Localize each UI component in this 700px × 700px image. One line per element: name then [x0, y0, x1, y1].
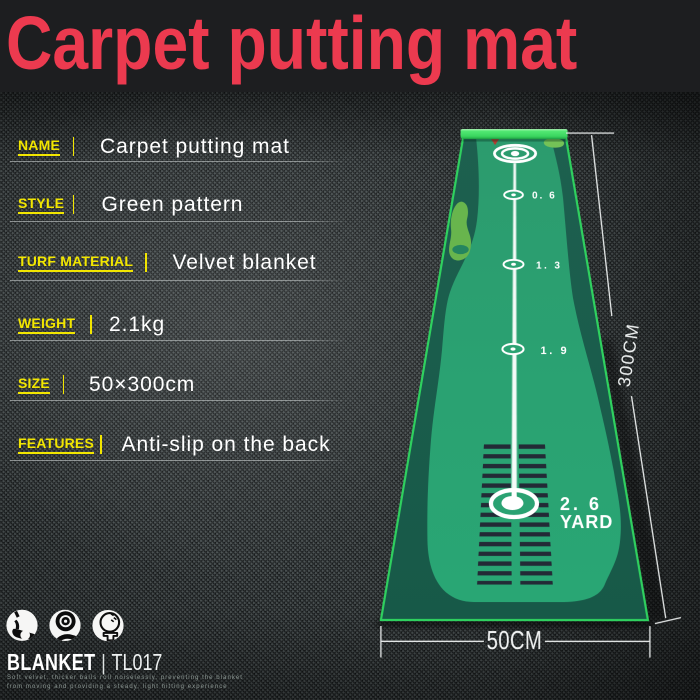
svg-text:1. 9: 1. 9 — [540, 345, 569, 357]
svg-text:300CM: 300CM — [614, 322, 643, 389]
svg-text:0. 6: 0. 6 — [532, 191, 557, 202]
svg-text:1. 3: 1. 3 — [536, 260, 562, 271]
svg-text:YARD: YARD — [560, 512, 613, 532]
svg-text:50CM: 50CM — [487, 625, 543, 654]
